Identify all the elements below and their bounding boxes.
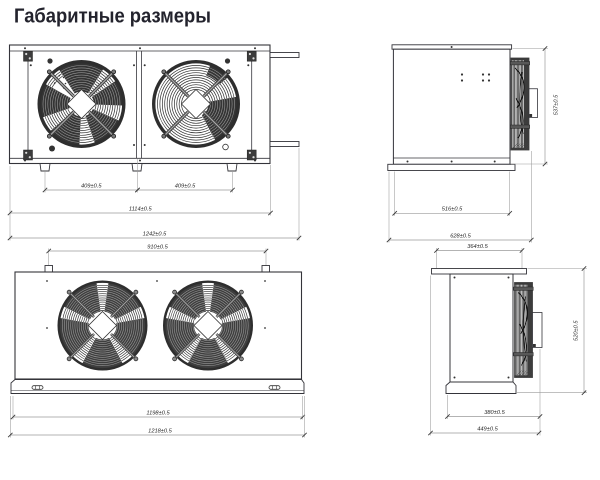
svg-text:1242±0.5: 1242±0.5 (143, 231, 168, 237)
svg-text:364±0.5: 364±0.5 (467, 244, 488, 250)
svg-text:1218±0.5: 1218±0.5 (148, 428, 173, 434)
svg-text:409±0.5: 409±0.5 (81, 183, 102, 189)
svg-text:Габаритные размеры: Габаритные размеры (14, 5, 211, 27)
svg-text:520±0.5: 520±0.5 (574, 320, 580, 341)
svg-text:449±0.5: 449±0.5 (477, 426, 498, 432)
svg-text:1198±0.5: 1198±0.5 (146, 410, 170, 416)
svg-text:910±0.5: 910±0.5 (147, 244, 168, 250)
svg-text:537±0.5: 537±0.5 (554, 94, 560, 115)
svg-text:409±0.5: 409±0.5 (175, 183, 196, 189)
svg-text:516±0.5: 516±0.5 (442, 207, 463, 213)
svg-text:628±0.5: 628±0.5 (450, 233, 471, 239)
svg-text:380±0.5: 380±0.5 (484, 410, 505, 416)
svg-text:1114±0.5: 1114±0.5 (129, 206, 153, 212)
